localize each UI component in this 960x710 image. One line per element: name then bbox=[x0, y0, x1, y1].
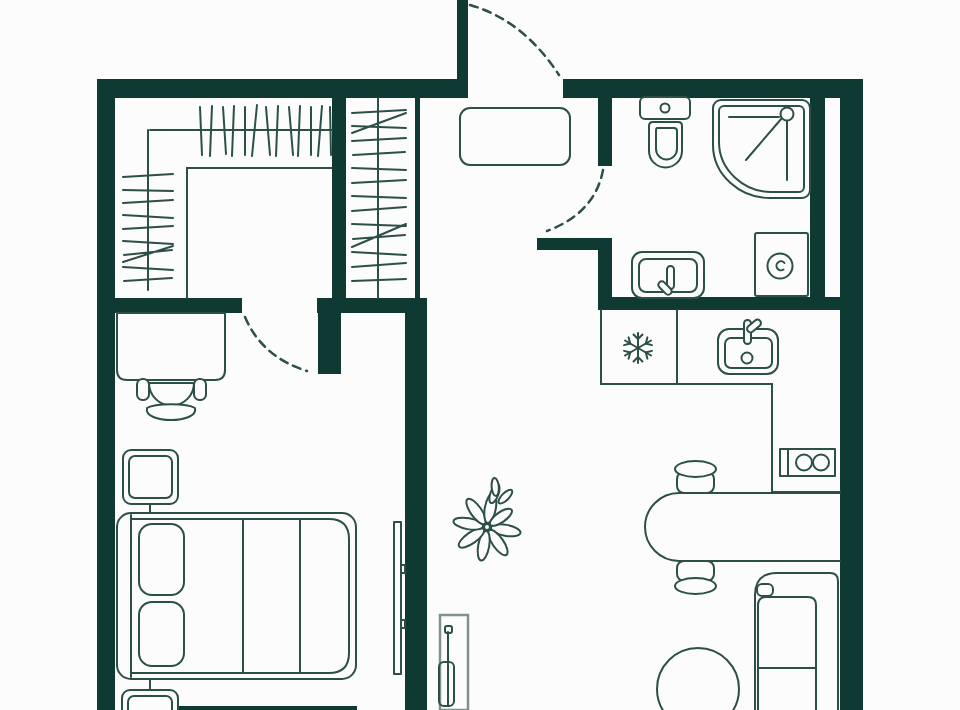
washbasin bbox=[632, 252, 704, 298]
cooktop-socket bbox=[780, 449, 835, 476]
pillow bbox=[139, 602, 184, 666]
plant bbox=[453, 478, 522, 562]
entry-bench bbox=[460, 108, 570, 165]
double-bed bbox=[117, 513, 356, 679]
chair-backrest bbox=[675, 461, 716, 477]
hall-console bbox=[439, 615, 468, 710]
kitchen-sink bbox=[718, 318, 778, 374]
wardrobe-partition-wall bbox=[332, 98, 346, 298]
sofa-pillow bbox=[757, 584, 773, 596]
pillow bbox=[139, 524, 184, 595]
dining-chair-top bbox=[675, 461, 716, 493]
shower-cabin bbox=[713, 100, 810, 198]
desk-chair bbox=[137, 379, 206, 420]
chair-base bbox=[147, 404, 195, 420]
toilet-tank bbox=[640, 97, 690, 119]
washing-machine bbox=[755, 233, 808, 296]
wall-bedroom-top-left bbox=[115, 298, 242, 313]
wall-left bbox=[97, 79, 115, 710]
wall-right bbox=[840, 79, 863, 710]
vent-shaft-wall bbox=[810, 98, 825, 310]
tv-mount bbox=[401, 620, 405, 628]
coat-closet bbox=[352, 98, 406, 298]
wall-hallway bbox=[405, 313, 427, 710]
toilet bbox=[640, 97, 690, 168]
chair-seat bbox=[149, 383, 194, 406]
wall-top-right bbox=[563, 79, 863, 98]
bathroom bbox=[632, 97, 810, 298]
wall-bathroom-kitchen bbox=[598, 297, 840, 310]
entry-hall bbox=[439, 108, 570, 710]
wardrobe-room bbox=[123, 105, 332, 298]
fridge-snowflake-icon bbox=[623, 333, 653, 363]
chair-armrest bbox=[137, 379, 149, 400]
tv-panel bbox=[394, 522, 405, 674]
closet-front-panel bbox=[415, 98, 420, 298]
floor-plan-drawing bbox=[0, 0, 960, 710]
wall-bottom-sliver bbox=[177, 706, 357, 710]
wall-top-left bbox=[97, 79, 458, 98]
wall-bathroom-left-top bbox=[598, 98, 612, 166]
chair-backrest bbox=[675, 578, 716, 594]
kitchen bbox=[601, 310, 840, 492]
bathroom-door-arc bbox=[547, 170, 603, 231]
nightstand-bottom bbox=[122, 679, 178, 710]
desk bbox=[117, 313, 225, 380]
wall-bedroom-top-right bbox=[317, 298, 427, 313]
wall-bathroom-stub bbox=[537, 238, 612, 250]
chair-armrest bbox=[194, 379, 206, 400]
tv-mount bbox=[401, 565, 405, 573]
bedroom bbox=[117, 313, 405, 710]
entry-door-leaf bbox=[457, 0, 468, 98]
bedroom-door-leaf bbox=[318, 313, 341, 374]
shower-head bbox=[781, 108, 794, 121]
round-ottoman bbox=[657, 648, 739, 710]
dining-table bbox=[645, 493, 840, 561]
floor-plan bbox=[0, 0, 960, 710]
bedroom-door-arc bbox=[245, 317, 307, 371]
sofa-seat bbox=[758, 597, 816, 710]
wall-bathroom-left-bottom bbox=[598, 250, 612, 310]
wardrobe-inner-edge bbox=[187, 168, 332, 298]
dining-chair-bottom bbox=[675, 561, 716, 594]
entry-door-arc bbox=[470, 5, 559, 75]
nightstand-top bbox=[123, 450, 178, 513]
sofa bbox=[755, 573, 838, 710]
